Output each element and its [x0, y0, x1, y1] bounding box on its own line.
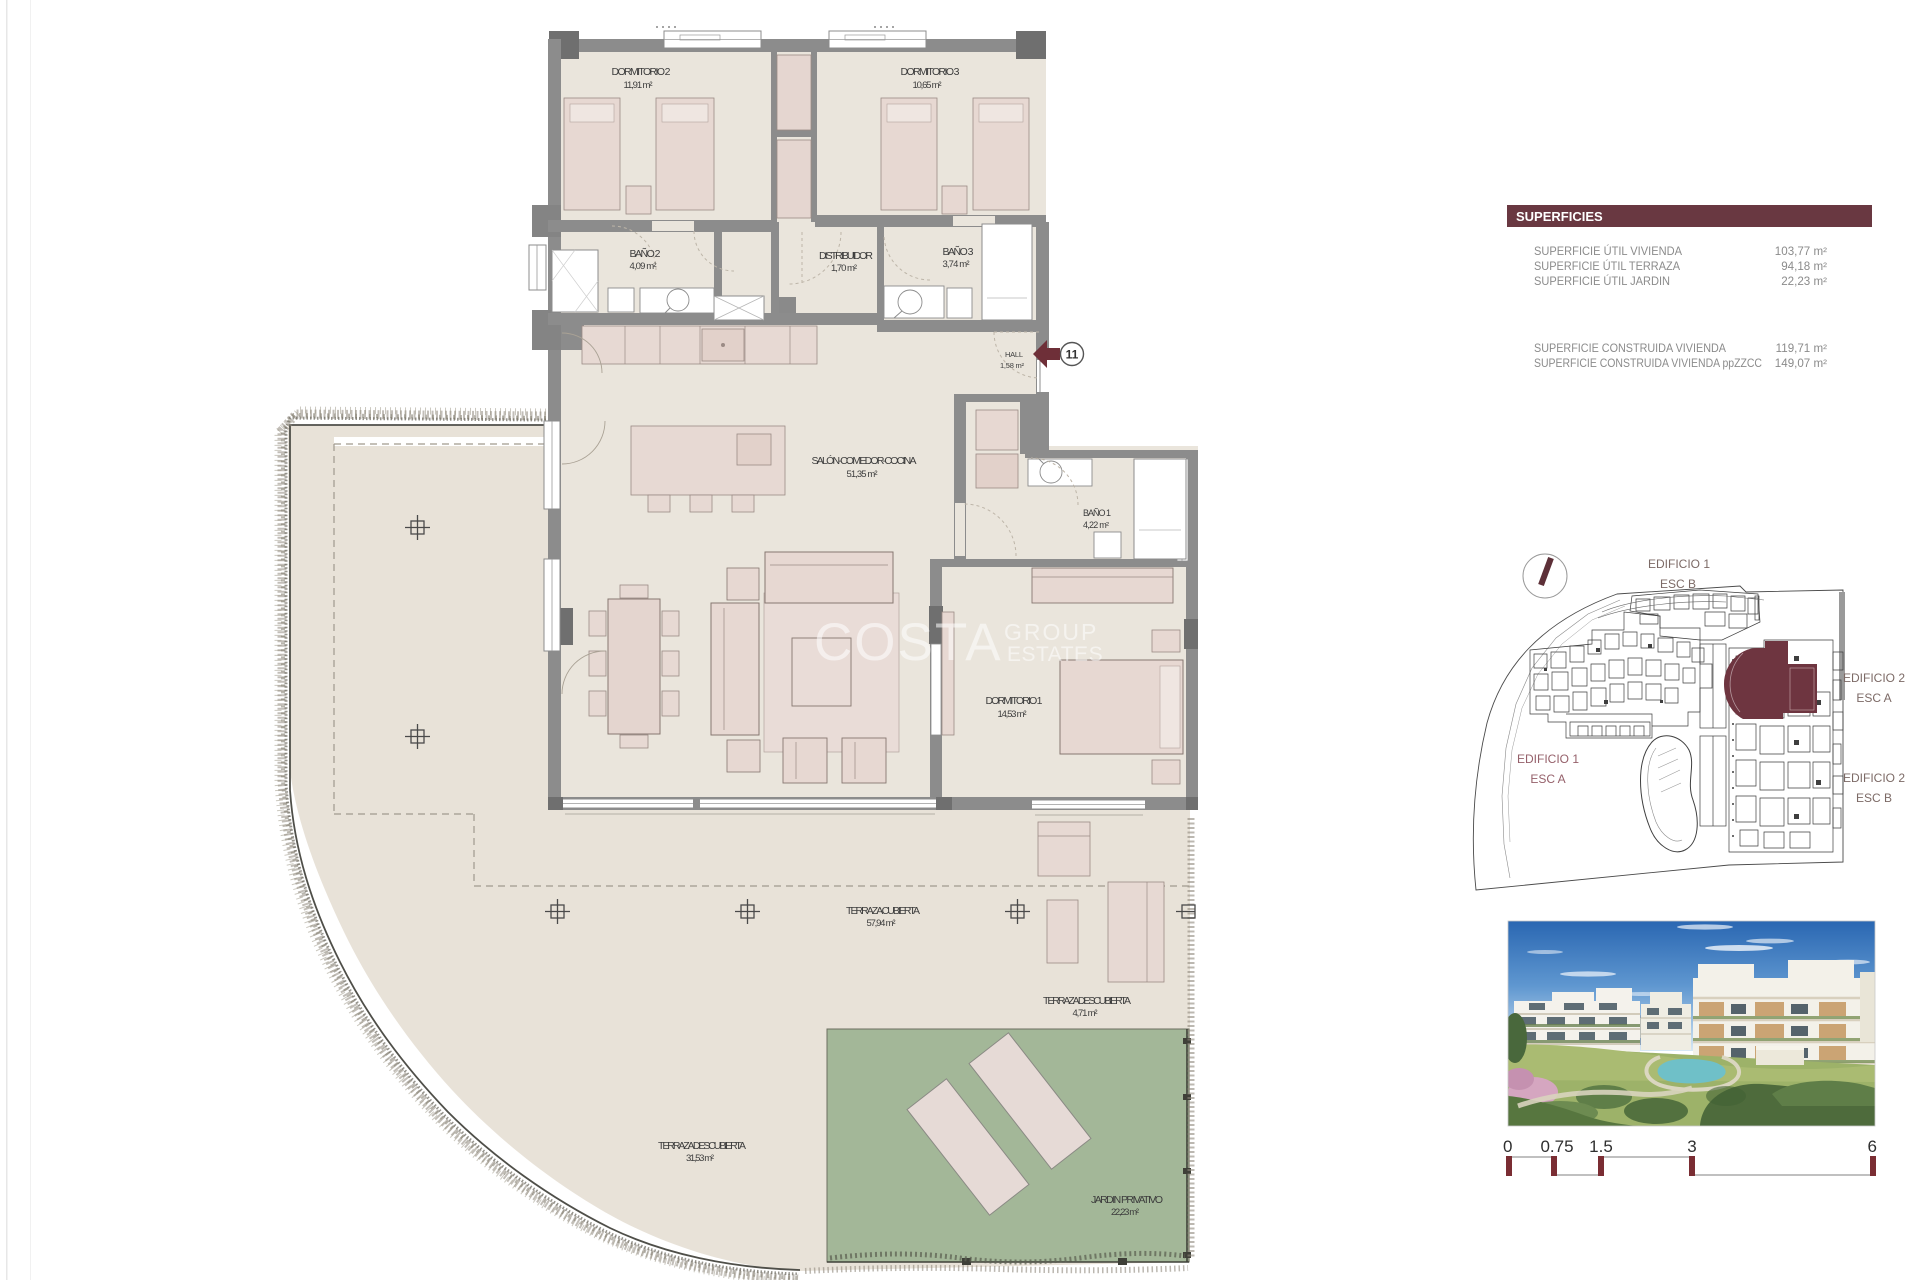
svg-text:10,65 m²: 10,65 m² [913, 80, 942, 91]
svg-text:94,18 m²: 94,18 m² [1781, 260, 1827, 273]
svg-text:ESC B: ESC B [1660, 577, 1696, 591]
svg-text:SALÓN-COMEDOR-COCINA: SALÓN-COMEDOR-COCINA [812, 454, 917, 467]
svg-text:4,09 m²: 4,09 m² [630, 261, 657, 272]
svg-text:14,53 m²: 14,53 m² [998, 709, 1027, 720]
svg-text:6: 6 [1868, 1137, 1877, 1156]
svg-text:EDIFICIO 2: EDIFICIO 2 [1843, 771, 1905, 785]
svg-text:BAÑO 3: BAÑO 3 [943, 245, 974, 258]
svg-text:4,22 m²: 4,22 m² [1083, 520, 1109, 530]
svg-text:1,70 m²: 1,70 m² [831, 263, 857, 274]
svg-text:149,07 m²: 149,07 m² [1775, 357, 1827, 370]
svg-text:GROUP: GROUP [1004, 619, 1098, 645]
svg-text:31,53 m²: 31,53 m² [686, 1153, 714, 1164]
svg-text:COSTA: COSTA [814, 613, 1003, 672]
svg-text:ESC A: ESC A [1856, 691, 1891, 705]
svg-text:0.75: 0.75 [1540, 1137, 1573, 1156]
svg-text:HALL: HALL [1005, 350, 1023, 359]
svg-text:SUPERFICIE ÚTIL JARDIN: SUPERFICIE ÚTIL JARDIN [1534, 275, 1670, 288]
svg-text:SUPERFICIE CONSTRUIDA VIVIENDA: SUPERFICIE CONSTRUIDA VIVIENDA [1534, 342, 1726, 355]
svg-text:DORMITORIO 1: DORMITORIO 1 [986, 695, 1043, 707]
svg-text:1,58 m²: 1,58 m² [1000, 361, 1025, 370]
svg-text:4,71 m²: 4,71 m² [1073, 1008, 1098, 1019]
svg-text:1.5: 1.5 [1589, 1137, 1613, 1156]
svg-text:EDIFICIO 1: EDIFICIO 1 [1517, 752, 1579, 766]
svg-text:ESC B: ESC B [1856, 791, 1892, 805]
svg-text:DISTRIBUIDOR: DISTRIBUIDOR [819, 250, 873, 262]
svg-text:TERRAZA DESCUBIERTA: TERRAZA DESCUBIERTA [1043, 995, 1131, 1007]
svg-text:22,23 m²: 22,23 m² [1781, 275, 1827, 288]
svg-text:57,94 m²: 57,94 m² [867, 918, 896, 929]
svg-text:SUPERFICIE CONSTRUIDA VIVIENDA: SUPERFICIE CONSTRUIDA VIVIENDA ppZZCC [1534, 357, 1762, 370]
svg-text:JARDIN PRIVATIVO: JARDIN PRIVATIVO [1091, 1194, 1163, 1206]
svg-text:SUPERFICIE ÚTIL TERRAZA: SUPERFICIE ÚTIL TERRAZA [1534, 260, 1680, 273]
svg-text:BAÑO 1: BAÑO 1 [1083, 508, 1111, 518]
svg-text:103,77 m²: 103,77 m² [1775, 245, 1827, 258]
svg-text:11,91 m²: 11,91 m² [624, 80, 653, 91]
svg-text:ESTATES: ESTATES [1007, 643, 1103, 666]
svg-text:EDIFICIO 1: EDIFICIO 1 [1648, 557, 1710, 571]
svg-text:22,23 m²: 22,23 m² [1111, 1207, 1139, 1218]
svg-text:DORMITORIO 2: DORMITORIO 2 [612, 66, 671, 78]
svg-text:EDIFICIO 2: EDIFICIO 2 [1843, 671, 1905, 685]
svg-text:BAÑO 2: BAÑO 2 [630, 247, 661, 260]
svg-text:11: 11 [1066, 348, 1079, 362]
svg-text:119,71 m²: 119,71 m² [1776, 342, 1827, 355]
svg-text:SUPERFICIE ÚTIL VIVIENDA: SUPERFICIE ÚTIL VIVIENDA [1534, 245, 1682, 258]
svg-text:TERRAZA CUBIERTA: TERRAZA CUBIERTA [846, 905, 920, 917]
svg-text:0: 0 [1503, 1137, 1512, 1156]
svg-text:SUPERFICIES: SUPERFICIES [1516, 209, 1603, 224]
svg-text:3: 3 [1687, 1137, 1696, 1156]
svg-text:3,74 m²: 3,74 m² [943, 259, 970, 270]
svg-text:51,35 m²: 51,35 m² [847, 469, 878, 480]
svg-text:TERRAZA DESCUBIERTA: TERRAZA DESCUBIERTA [658, 1140, 746, 1152]
svg-text:ESC A: ESC A [1530, 772, 1565, 786]
svg-text:DORMITORIO 3: DORMITORIO 3 [901, 66, 960, 78]
